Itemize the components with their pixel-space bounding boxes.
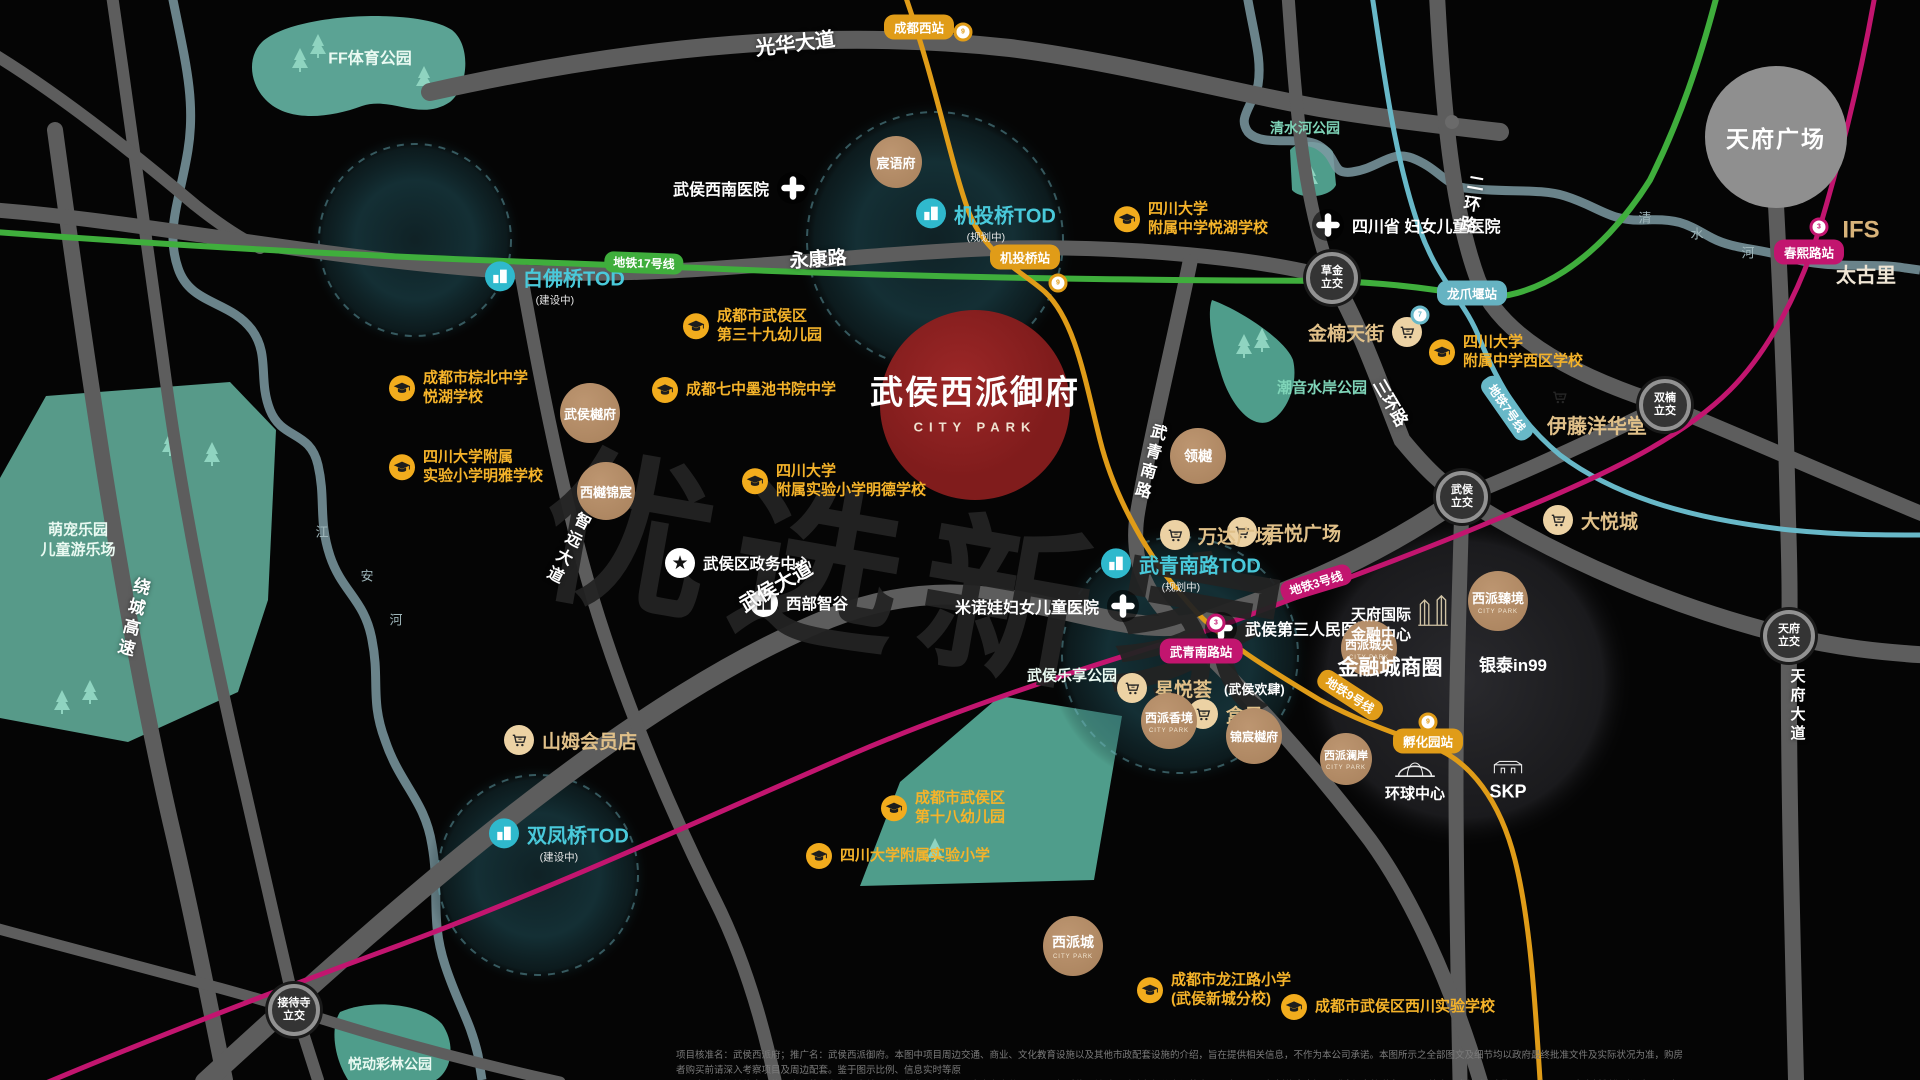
hospital-minuowa: 米诺娃妇女儿童医院	[955, 590, 1139, 622]
interchange-wuhou: 武侯立交	[1436, 471, 1488, 523]
school-mochi-academy: 成都七中墨池书院中学	[652, 377, 836, 403]
hospital-cross-icon	[777, 172, 809, 204]
landmark-tianfu-square: 天府广场	[1705, 66, 1847, 208]
residence-lingyue: 领樾	[1170, 428, 1226, 484]
shop-joy-city: 大悦城	[1543, 505, 1638, 535]
river-label-qingshuihe: 水	[1690, 224, 1703, 243]
river-label-jiangan: 江	[315, 522, 328, 541]
school-icon	[881, 795, 907, 821]
school-scu-primary: 四川大学附属实验小学	[806, 843, 990, 869]
tod-icon	[1101, 548, 1131, 578]
school-zongbei-middle: 成都市棕北中学悦湖学校	[389, 369, 528, 407]
school-yuehu-middle: 四川大学附属中学悦湖学校	[1114, 200, 1268, 238]
interchange-tianfu: 天府立交	[1763, 610, 1815, 662]
tod-icon	[489, 818, 519, 848]
shop-sams-club: 山姆会员店	[504, 725, 637, 755]
hospital-cross-icon	[1107, 590, 1139, 622]
road-label-tianfu-dadao: 天府大道	[1787, 668, 1808, 744]
school-icon	[389, 375, 415, 401]
hospital-wuhou-southwest: 武侯西南医院	[673, 172, 809, 204]
location-map: 优选新家 白佛桥TOD(建设中)机投桥TOD(规划中)武青南路TOD(规划中)双…	[0, 0, 1920, 1080]
school-xichuan-experimental: 成都市武侯区西川实验学校	[1281, 994, 1495, 1020]
river-label-jiangan: 安	[360, 566, 373, 585]
park-label-yuedong: 悦动彩林公园	[348, 1055, 432, 1073]
station-fuhuayuan: 孵化园站	[1393, 729, 1463, 754]
tod-icon	[916, 198, 946, 228]
metro-station-dot: 3	[1207, 614, 1226, 633]
road-label-sanhuan: 三环路	[1368, 374, 1415, 431]
residence-xiyue-jinchen: 西樾锦宸	[577, 462, 635, 520]
residence-chenyufu: 宸语府	[870, 136, 922, 188]
shop-wanda-plaza: 万达广场	[1160, 520, 1274, 550]
shopping-cart-icon	[504, 725, 534, 755]
station-chengdu-west: 成都西站	[884, 15, 954, 40]
tod-icon	[485, 261, 515, 291]
school-icon	[742, 468, 768, 494]
residence-xipai-xiangjing: 西派香境CITY PARK	[1141, 693, 1197, 749]
school-xiqu-middle: 四川大学附属中学西区学校	[1429, 333, 1583, 371]
metro-line-17-label: 地铁17号线	[604, 251, 684, 275]
tod-wuqingnanlu: 武青南路TOD(规划中)	[1101, 548, 1261, 594]
landmark-taikoo-li: 太古里	[1836, 263, 1896, 289]
residence-xipai-zhenjing: 西派臻境CITY PARK	[1468, 571, 1528, 631]
landmark-skp: SKP	[1489, 780, 1526, 803]
school-icon	[1137, 977, 1163, 1003]
river-label-qingshuihe: 清	[1638, 208, 1651, 227]
landmark-ifs: IFS	[1842, 214, 1879, 245]
metro-station-dot: 9	[954, 23, 973, 42]
residence-xipai-cheng: 西派城CITY PARK	[1043, 916, 1103, 976]
metro-station-dot: 9	[1049, 274, 1068, 293]
interchange-shuangnan: 双楠立交	[1639, 379, 1691, 431]
station-jitouqiao: 机投桥站	[990, 245, 1060, 270]
landmark-global-center: 环球中心	[1385, 784, 1445, 804]
landmark-financial-city: 金融城商圈	[1338, 654, 1443, 681]
school-icon	[389, 454, 415, 480]
metro-station-dot: 7	[1411, 306, 1430, 325]
school-icon	[683, 313, 709, 339]
school-icon	[806, 843, 832, 869]
school-icon	[652, 377, 678, 403]
shop-jinnan-tianjie: 金楠天街	[1308, 317, 1422, 347]
skp-building-icon	[1491, 758, 1525, 781]
metro-line-3-label: 地铁3号线	[1278, 562, 1354, 603]
school-longjiang-primary: 成都市龙江路小学(武侯新城分校)	[1137, 971, 1291, 1009]
star-icon: ★	[665, 548, 695, 578]
tod-jitouqiao: 机投桥TOD(规划中)	[916, 198, 1056, 244]
residence-xipai-lanan: 西派澜岸CITY PARK	[1320, 733, 1372, 785]
tod-baifoqiao: 白佛桥TOD(建设中)	[485, 261, 625, 307]
road-label-raocheng: 绕城高速	[110, 574, 155, 662]
residence-jinchen-yuefu: 锦宸樾府	[1226, 708, 1282, 764]
project-title: 武侯西派御府CITY PARK	[870, 366, 1080, 435]
road-label-yongkang: 永康路	[789, 243, 848, 274]
twin-towers-icon	[1412, 592, 1454, 633]
station-longzhuayan: 龙爪堰站	[1437, 281, 1507, 306]
school-39-kindergarten: 成都市武侯区第三十九幼儿园	[683, 307, 822, 345]
road-label-zhiyuan: 智远大道	[537, 507, 595, 589]
school-mingya-primary: 四川大学附属实验小学明雅学校	[389, 448, 543, 486]
residence-wuhou-yuefu: 武侯樾府	[560, 383, 620, 443]
interchange-caojin: 草金立交	[1306, 252, 1358, 304]
road-label-wuqingnanlu: 武青南路	[1126, 420, 1170, 503]
road-label-guanghua: 光华大道	[754, 23, 837, 62]
metro-station-dot: 3	[1810, 218, 1829, 237]
disclaimer: 项目核准名：武侯西派府；推广名：武侯西派御府。本图中项目周边交通、商业、文化教育…	[676, 1048, 1686, 1080]
school-icon	[1429, 339, 1455, 365]
shopping-cart-icon	[1543, 505, 1573, 535]
disclaimer-line-1: 项目核准名：武侯西派府；推广名：武侯西派御府。本图中项目周边交通、商业、文化教育…	[676, 1048, 1686, 1078]
landmark-intime-in99: 银泰in99	[1479, 655, 1547, 677]
park-label-mengchong: 萌宠乐园儿童游乐场	[40, 521, 115, 560]
interchange-jiedaisi: 接待寺立交	[268, 984, 320, 1036]
school-icon	[1281, 994, 1307, 1020]
shop-yito-yokado: 伊藤洋华堂	[1547, 414, 1647, 440]
shopping-cart-icon	[1160, 520, 1190, 550]
hospital-cross-icon	[1312, 209, 1344, 241]
station-chunxilu: 春熙路站	[1774, 240, 1844, 265]
river-label-qingshuihe: 河	[1741, 243, 1754, 262]
metro-line-7-label: 地铁7号线	[1478, 372, 1537, 444]
poi-layer: 白佛桥TOD(建设中)机投桥TOD(规划中)武青南路TOD(规划中)双凤桥TOD…	[0, 0, 1920, 1080]
tod-shuangfengqiao: 双凤桥TOD(建设中)	[489, 818, 629, 864]
station-wuqingnanlu: 武青南路站	[1160, 639, 1243, 664]
park-label-ff-sports: FF体育公园	[328, 50, 412, 71]
globe-center-icon	[1393, 759, 1437, 784]
metro-station-dot: 9	[1419, 713, 1438, 732]
cart-icon-yito	[1551, 388, 1570, 412]
shopping-cart-icon	[1117, 673, 1147, 703]
school-18-kindergarten: 成都市武侯区第十八幼儿园	[881, 789, 1005, 827]
school-mingde-primary: 四川大学附属实验小学明德学校	[742, 462, 926, 500]
park-label-chaoyin: 潮音水岸公园	[1277, 378, 1367, 398]
park-label-qingshuihe: 清水河公园	[1270, 119, 1340, 137]
school-icon	[1114, 206, 1140, 232]
park-label-lexiang: 武侯乐享公园	[1027, 666, 1117, 686]
river-label-jiangan: 河	[389, 610, 402, 629]
landmark-tianfu-intl-finance: 天府国际金融中心	[1351, 606, 1411, 645]
